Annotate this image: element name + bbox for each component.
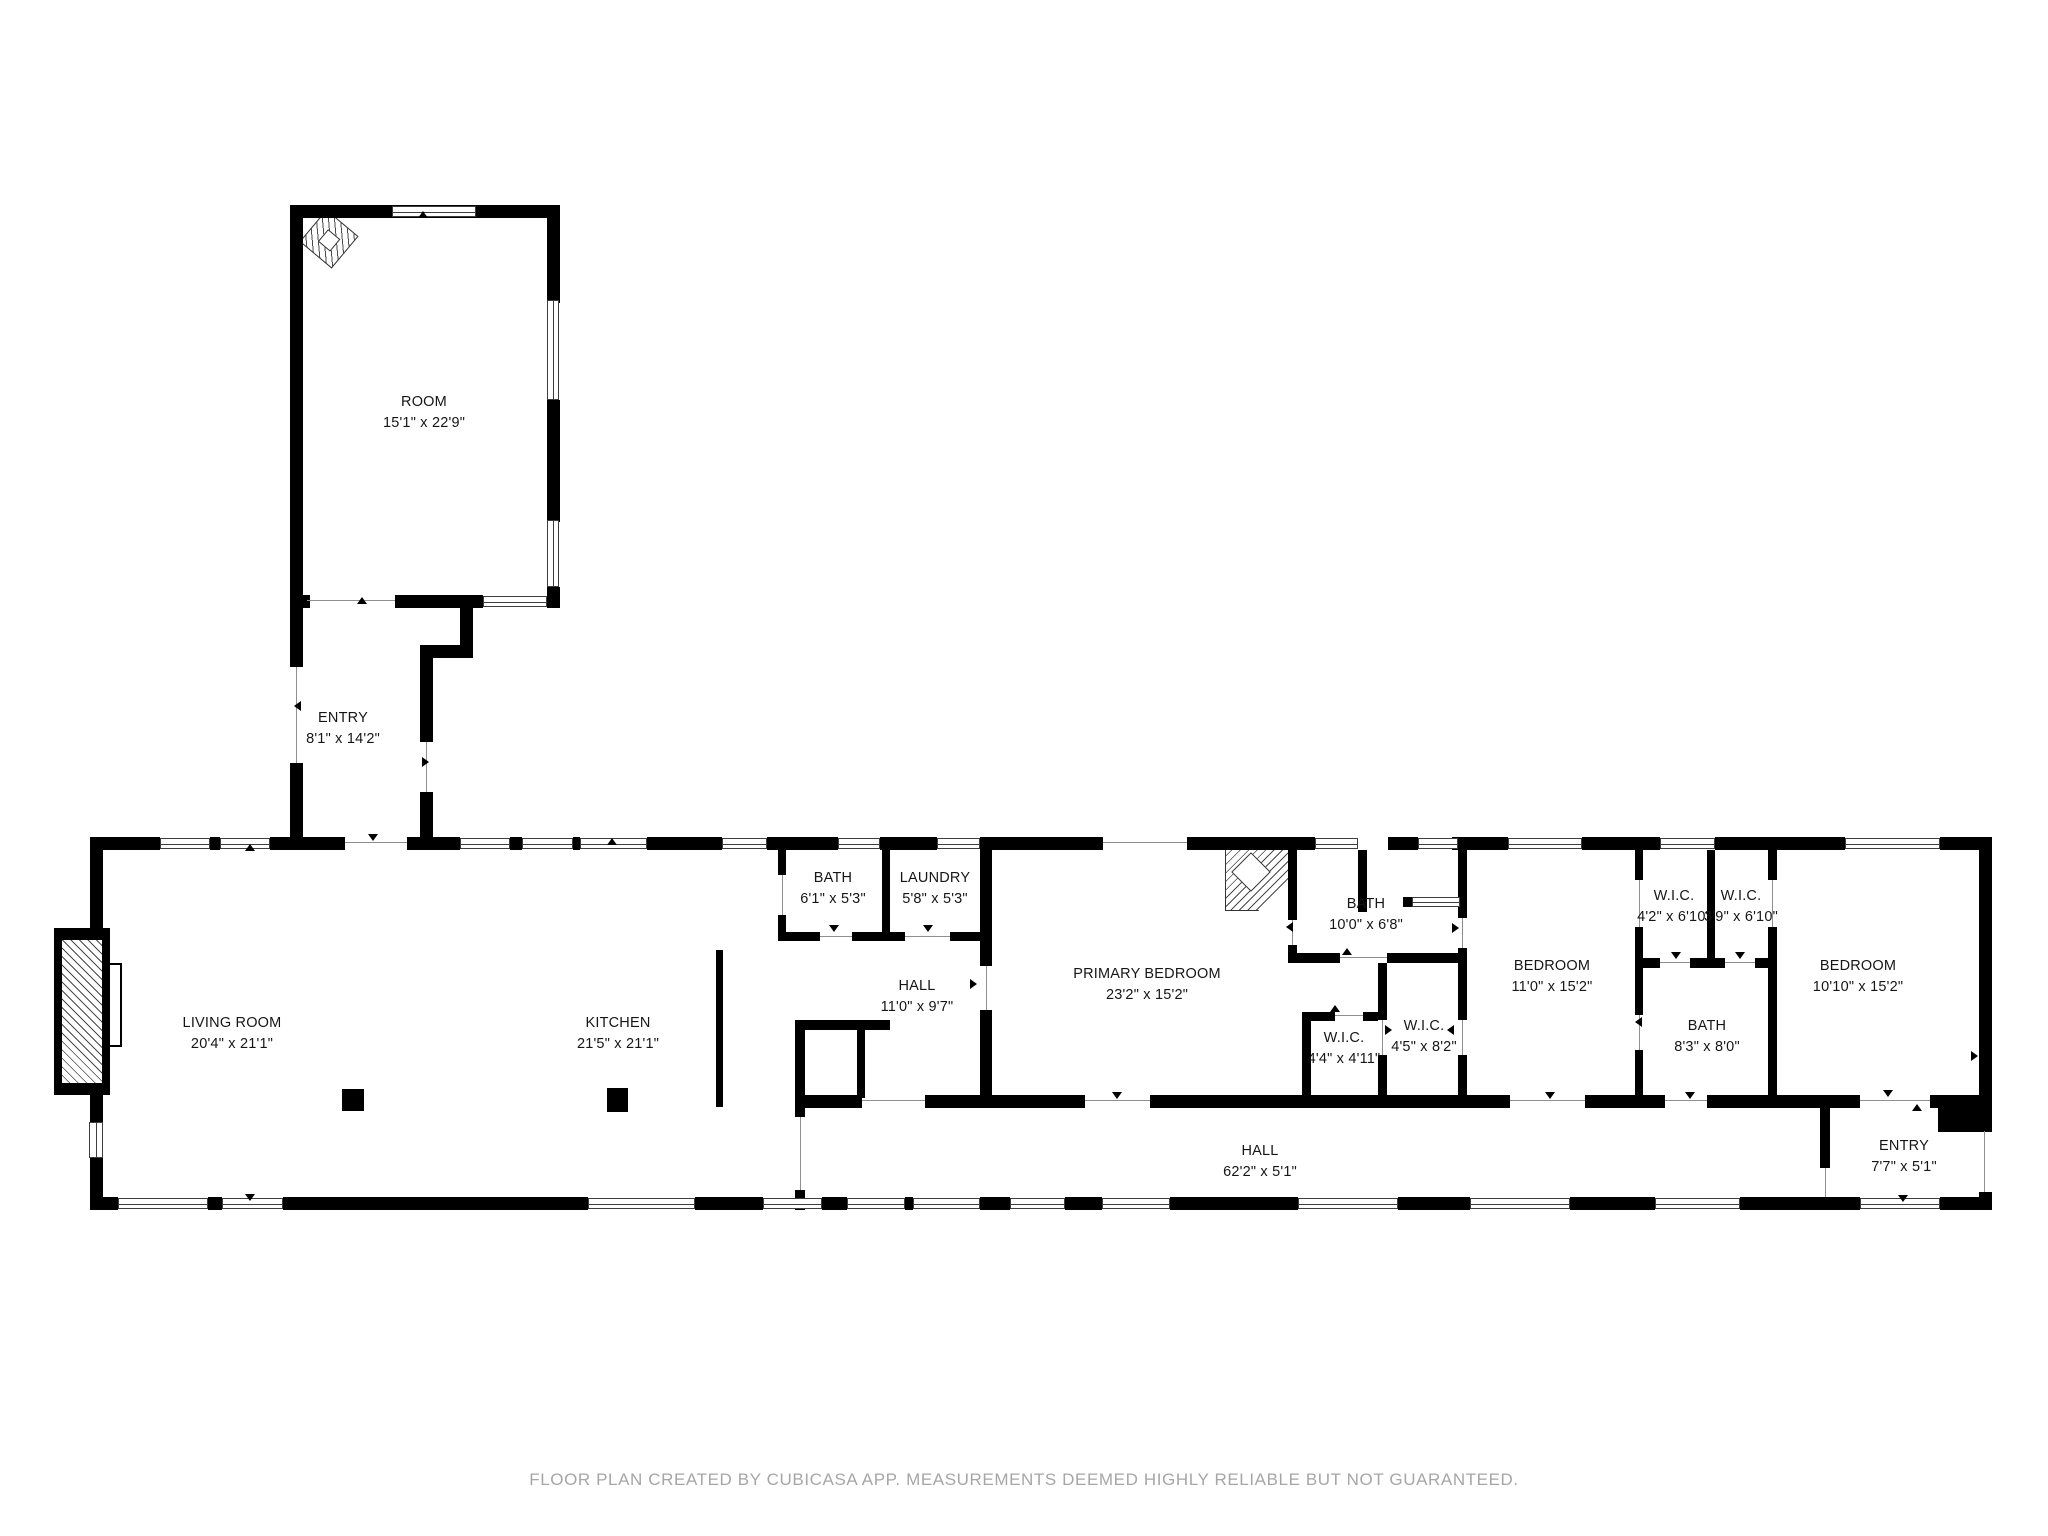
door-swing-marker — [422, 757, 429, 767]
door-opening-line — [1382, 1020, 1383, 1055]
wall-segment — [1387, 953, 1465, 963]
window-marker — [160, 838, 210, 849]
column-post — [342, 1089, 364, 1111]
door-swing-marker — [970, 979, 977, 989]
room-label-wic-4: W.I.C.3'9" x 6'10" — [1704, 886, 1778, 928]
wall-segment — [882, 850, 890, 940]
room-dimensions: 10'0" x 6'8" — [1329, 915, 1403, 936]
wall-segment — [1398, 1197, 1470, 1210]
wall-segment — [925, 1095, 1085, 1108]
window-marker — [1412, 897, 1460, 907]
room-label-bath-2: BATH8'3" x 8'0" — [1674, 1016, 1740, 1058]
wall-segment — [695, 1197, 763, 1210]
window-marker — [1845, 838, 1940, 849]
fireplace-hatch — [62, 940, 102, 1083]
wall-segment — [1585, 1095, 1665, 1108]
wall-segment — [407, 837, 460, 850]
wall-segment — [795, 1020, 890, 1030]
door-opening-line — [307, 600, 395, 601]
door-swing-marker — [245, 1194, 255, 1201]
wall-segment — [290, 763, 303, 845]
wall-segment — [647, 837, 722, 850]
room-dimensions: 3'9" x 6'10" — [1704, 907, 1778, 928]
room-dimensions: 10'10" x 15'2" — [1813, 977, 1903, 998]
door-opening-line — [1335, 1015, 1363, 1016]
room-dimensions: 4'5" x 8'2" — [1391, 1037, 1457, 1058]
wall-segment — [290, 595, 310, 608]
door-opening-line — [800, 1117, 801, 1190]
wall-segment — [1458, 948, 1467, 1020]
window-marker — [763, 1198, 822, 1209]
door-swing-marker — [1545, 1092, 1555, 1099]
window-marker — [483, 596, 547, 607]
door-opening-line — [345, 842, 407, 843]
room-dimensions: 5'8" x 5'3" — [900, 889, 970, 910]
door-swing-marker — [368, 834, 378, 841]
wall-segment — [208, 1197, 222, 1210]
stove-symbol-core — [318, 229, 341, 252]
room-label-primary-bath: BATH10'0" x 6'8" — [1329, 894, 1403, 936]
door-swing-marker — [1671, 952, 1681, 959]
window-marker — [1660, 838, 1715, 849]
door-opening-line — [1462, 1020, 1463, 1055]
room-name: ENTRY — [306, 708, 380, 729]
room-dimensions: 8'3" x 8'0" — [1674, 1037, 1740, 1058]
wall-segment — [805, 1095, 862, 1108]
door-swing-marker — [1112, 1092, 1122, 1099]
door-opening-line — [426, 742, 427, 792]
wall-segment — [980, 1010, 992, 1108]
door-swing-marker — [1635, 1017, 1642, 1027]
wall-segment — [1187, 837, 1315, 850]
wall-segment — [852, 932, 905, 941]
window-marker — [1315, 838, 1358, 849]
window-marker — [460, 838, 510, 849]
room-label-laundry: LAUNDRY5'8" x 5'3" — [900, 868, 970, 910]
door-opening-line — [862, 1100, 925, 1101]
room-label-entry-upper: ENTRY8'1" x 14'2" — [306, 708, 380, 750]
window-marker — [1010, 1198, 1065, 1209]
room-dimensions: 8'1" x 14'2" — [306, 729, 380, 750]
door-swing-marker — [1342, 948, 1352, 955]
room-label-wic-1: W.I.C.4'4" x 4'11" — [1308, 1028, 1381, 1070]
room-name: W.I.C. — [1391, 1016, 1457, 1037]
door-opening-line — [1725, 962, 1755, 963]
wall-segment — [1707, 1095, 1860, 1108]
door-swing-marker — [607, 838, 617, 845]
window-marker — [118, 1198, 208, 1209]
wall-segment — [857, 1030, 865, 1098]
room-label-wic-3: W.I.C.4'2" x 6'10" — [1637, 886, 1711, 928]
room-name: BEDROOM — [1511, 956, 1592, 977]
door-swing-marker — [418, 211, 428, 218]
wall-segment — [573, 837, 580, 850]
room-label-room: ROOM15'1" x 22'9" — [383, 392, 465, 434]
door-swing-marker — [829, 925, 839, 932]
room-label-hall-corridor: HALL62'2" x 5'1" — [1223, 1141, 1297, 1183]
room-name: W.I.C. — [1308, 1028, 1381, 1049]
wall-segment — [210, 837, 220, 850]
room-dimensions: 7'7" x 5'1" — [1871, 1157, 1937, 1178]
wall-segment — [547, 205, 560, 303]
room-dimensions: 11'0" x 9'7" — [881, 997, 954, 1018]
window-marker — [588, 1198, 695, 1209]
wall-segment — [1170, 1197, 1298, 1210]
door-swing-marker — [1685, 1092, 1695, 1099]
room-dimensions: 21'5" x 21'1" — [577, 1034, 659, 1055]
door-swing-marker — [357, 597, 367, 604]
room-dimensions: 62'2" x 5'1" — [1223, 1162, 1297, 1183]
window-marker — [1655, 1198, 1740, 1209]
door-swing-marker — [1330, 1005, 1340, 1012]
room-label-kitchen: KITCHEN21'5" x 21'1" — [577, 1013, 659, 1055]
wall-segment — [1363, 1012, 1378, 1021]
room-name: HALL — [881, 976, 954, 997]
wall-segment — [420, 658, 433, 742]
door-swing-marker — [1452, 923, 1459, 933]
wall-segment — [795, 1020, 805, 1117]
door-opening-line — [1860, 1100, 1930, 1101]
room-label-bedroom-1: BEDROOM11'0" x 15'2" — [1511, 956, 1592, 998]
wall-segment — [1388, 837, 1418, 850]
window-marker — [937, 838, 980, 849]
door-swing-marker — [1898, 1195, 1908, 1202]
wall-segment — [1582, 837, 1660, 850]
room-label-wic-2: W.I.C.4'5" x 8'2" — [1391, 1016, 1457, 1058]
window-marker — [392, 206, 476, 217]
wall-segment — [950, 932, 980, 941]
door-opening-line — [986, 966, 987, 1010]
door-swing-marker — [245, 844, 255, 851]
wall-segment — [1938, 1095, 1992, 1132]
wall-segment — [1288, 953, 1340, 963]
wall-segment — [778, 932, 820, 941]
window-marker — [1298, 1198, 1398, 1209]
wall-segment — [1403, 897, 1412, 907]
window-marker — [547, 520, 559, 587]
wall-segment — [547, 595, 560, 608]
door-opening-line — [820, 936, 852, 937]
footer-disclaimer: FLOOR PLAN CREATED BY CUBICASA APP. MEAS… — [529, 1470, 1519, 1490]
room-label-entry-lower: ENTRY7'7" x 5'1" — [1871, 1136, 1937, 1178]
door-swing-marker — [1286, 922, 1293, 932]
wall-segment — [1458, 850, 1467, 918]
column-post — [607, 1088, 628, 1112]
wall-segment — [1150, 1095, 1510, 1108]
room-name: ROOM — [383, 392, 465, 413]
wall-segment — [905, 1197, 913, 1210]
room-label-primary-bedroom: PRIMARY BEDROOM23'2" x 15'2" — [1073, 964, 1221, 1006]
wall-segment — [1635, 927, 1643, 1015]
wall-segment — [270, 837, 345, 850]
window-marker — [847, 1198, 905, 1209]
wall-segment — [420, 645, 473, 658]
door-swing-marker — [294, 701, 301, 711]
room-name: HALL — [1223, 1141, 1297, 1162]
room-name: LIVING ROOM — [183, 1013, 282, 1034]
wall-segment — [1452, 837, 1508, 850]
wall-segment — [1635, 1050, 1643, 1108]
window-marker — [1102, 1198, 1170, 1209]
room-name: LAUNDRY — [900, 868, 970, 889]
door-swing-marker — [1912, 1104, 1922, 1111]
wall-segment — [980, 1197, 1010, 1210]
wall-segment — [980, 837, 1103, 850]
door-opening-line — [1665, 1100, 1707, 1101]
room-name: KITCHEN — [577, 1013, 659, 1034]
wall-segment — [1065, 1197, 1102, 1210]
window-marker — [722, 838, 767, 849]
door-swing-marker — [1883, 1090, 1893, 1097]
window-marker — [522, 838, 573, 849]
door-opening-line — [905, 936, 950, 937]
room-dimensions: 6'1" x 5'3" — [800, 889, 866, 910]
wall-segment — [767, 837, 786, 850]
wall-segment — [1378, 963, 1387, 1020]
wall-segment — [716, 950, 723, 1107]
door-opening-line — [296, 667, 297, 763]
wall-segment — [1979, 1192, 1992, 1210]
room-dimensions: 4'2" x 6'10" — [1637, 907, 1711, 928]
door-opening-line — [1462, 918, 1463, 948]
wall-segment — [1643, 958, 1660, 968]
wall-segment — [1740, 1197, 1860, 1210]
room-label-hall-room: HALL11'0" x 9'7" — [881, 976, 954, 1018]
wall-segment — [1458, 1055, 1467, 1108]
wall-segment — [1768, 927, 1777, 1108]
floor-plan-canvas: FLOOR PLAN CREATED BY CUBICASA APP. MEAS… — [0, 0, 2048, 1536]
room-dimensions: 15'1" x 22'9" — [383, 413, 465, 434]
door-opening-line — [1103, 842, 1187, 843]
room-label-living-room: LIVING ROOM20'4" x 21'1" — [183, 1013, 282, 1055]
door-opening-line — [1984, 1131, 1985, 1192]
room-label-bedroom-2: BEDROOM10'10" x 15'2" — [1813, 956, 1903, 998]
window-marker — [547, 300, 559, 400]
wall-segment — [283, 1197, 588, 1210]
room-name: BATH — [1674, 1016, 1740, 1037]
window-marker — [1470, 1198, 1570, 1209]
room-dimensions: 20'4" x 21'1" — [183, 1034, 282, 1055]
window-marker — [838, 838, 880, 849]
door-opening-line — [1510, 1100, 1585, 1101]
wall-segment — [980, 850, 992, 966]
room-name: BATH — [800, 868, 866, 889]
wall-segment — [1768, 850, 1777, 880]
door-swing-marker — [1971, 1051, 1978, 1061]
room-dimensions: 11'0" x 15'2" — [1511, 977, 1592, 998]
window-marker — [1418, 838, 1458, 849]
door-opening-line — [1660, 962, 1690, 963]
door-opening-line — [1340, 957, 1387, 958]
room-name: BEDROOM — [1813, 956, 1903, 977]
door-swing-marker — [923, 925, 933, 932]
wall-segment — [822, 1197, 847, 1210]
wall-segment — [778, 850, 786, 875]
room-name: W.I.C. — [1704, 886, 1778, 907]
wall-segment — [1979, 837, 1992, 1131]
room-name: PRIMARY BEDROOM — [1073, 964, 1221, 985]
wall-segment — [1635, 850, 1643, 880]
wall-segment — [880, 837, 937, 850]
door-swing-marker — [1735, 952, 1745, 959]
wall-segment — [1288, 850, 1297, 920]
door-opening-line — [1085, 1100, 1150, 1101]
wall-segment — [1570, 1197, 1655, 1210]
wall-segment — [547, 400, 560, 522]
door-opening-line — [1825, 1168, 1826, 1197]
window-marker — [1508, 838, 1582, 849]
wall-segment — [90, 1158, 103, 1210]
room-label-bath-1: BATH6'1" x 5'3" — [800, 868, 866, 910]
window-marker — [913, 1198, 980, 1209]
wall-segment — [786, 837, 838, 850]
room-dimensions: 4'4" x 4'11" — [1308, 1049, 1381, 1070]
window-marker — [89, 1122, 103, 1158]
room-name: ENTRY — [1871, 1136, 1937, 1157]
wall-segment — [1820, 1108, 1830, 1168]
room-name: W.I.C. — [1637, 886, 1711, 907]
door-opening-line — [782, 875, 783, 915]
wall-segment — [1715, 837, 1845, 850]
stove-symbol — [299, 209, 358, 268]
room-name: BATH — [1329, 894, 1403, 915]
room-dimensions: 23'2" x 15'2" — [1073, 985, 1221, 1006]
wall-segment — [1690, 958, 1725, 968]
wall-segment — [510, 837, 522, 850]
